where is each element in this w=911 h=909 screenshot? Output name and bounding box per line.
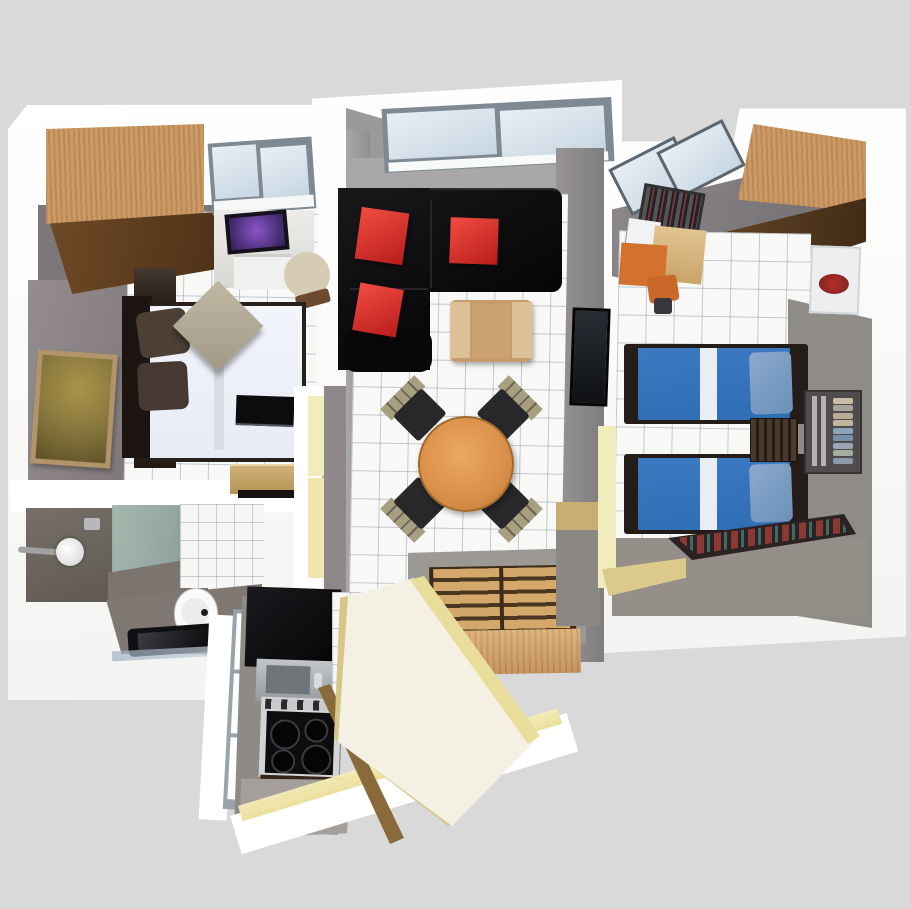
sofa-seam (430, 200, 432, 288)
red-cushion (352, 283, 404, 338)
cd-disc (833, 428, 853, 434)
armchair (450, 300, 532, 362)
wardrobe-left (46, 124, 204, 224)
cd-disc (833, 398, 853, 404)
bed-stripe (700, 458, 717, 530)
rack-rail (821, 396, 826, 466)
sink-basin (266, 665, 311, 695)
bed-pillow-blue (749, 463, 793, 522)
cd-disc (833, 420, 853, 426)
red-cushion (449, 217, 499, 265)
bedroom-left-window (208, 136, 317, 215)
laptop-screen (229, 214, 286, 251)
bed-pillow (137, 361, 189, 412)
bathroom-tiles (180, 504, 264, 588)
hall-shelf (556, 502, 602, 530)
cd-rack-discs (832, 396, 854, 466)
red-cushion (355, 207, 410, 265)
single-bed-blue (624, 454, 808, 534)
wall-tv (235, 395, 294, 427)
shower-head (56, 538, 84, 566)
chair-base (654, 298, 672, 314)
sink-faucet (314, 673, 323, 689)
bed-stripe (700, 348, 717, 420)
rack-rail (812, 396, 817, 466)
toilet-drain (201, 609, 208, 616)
cd-disc (833, 413, 853, 419)
window-pane (260, 145, 309, 198)
wall-painting (30, 349, 118, 468)
hall-lower-wall (556, 530, 600, 626)
armchair-arm (450, 302, 470, 358)
cd-disc (833, 450, 853, 456)
wall-picture (569, 307, 610, 406)
window-pane (212, 144, 260, 199)
cd-disc (833, 435, 853, 441)
window-pane (387, 108, 497, 160)
poster-car-image (819, 273, 850, 294)
bedroom-right-door-open (598, 426, 616, 588)
shower-fixture (84, 518, 100, 530)
cd-disc (833, 458, 853, 464)
armchair-seat (472, 304, 510, 358)
laptop (224, 209, 289, 254)
cd-disc (833, 443, 853, 449)
dining-table (418, 416, 514, 512)
armchair-arm (512, 302, 532, 358)
dresser-between-beds (750, 418, 798, 462)
kitchen-countertop (245, 586, 342, 669)
cd-disc (833, 405, 853, 411)
bed-pillow-blue (749, 351, 793, 414)
cd-wall-rack (804, 390, 862, 474)
single-bed-blue (624, 344, 808, 424)
painting-canvas (35, 355, 112, 464)
floor-plan-render (0, 0, 911, 909)
car-poster (809, 245, 861, 315)
